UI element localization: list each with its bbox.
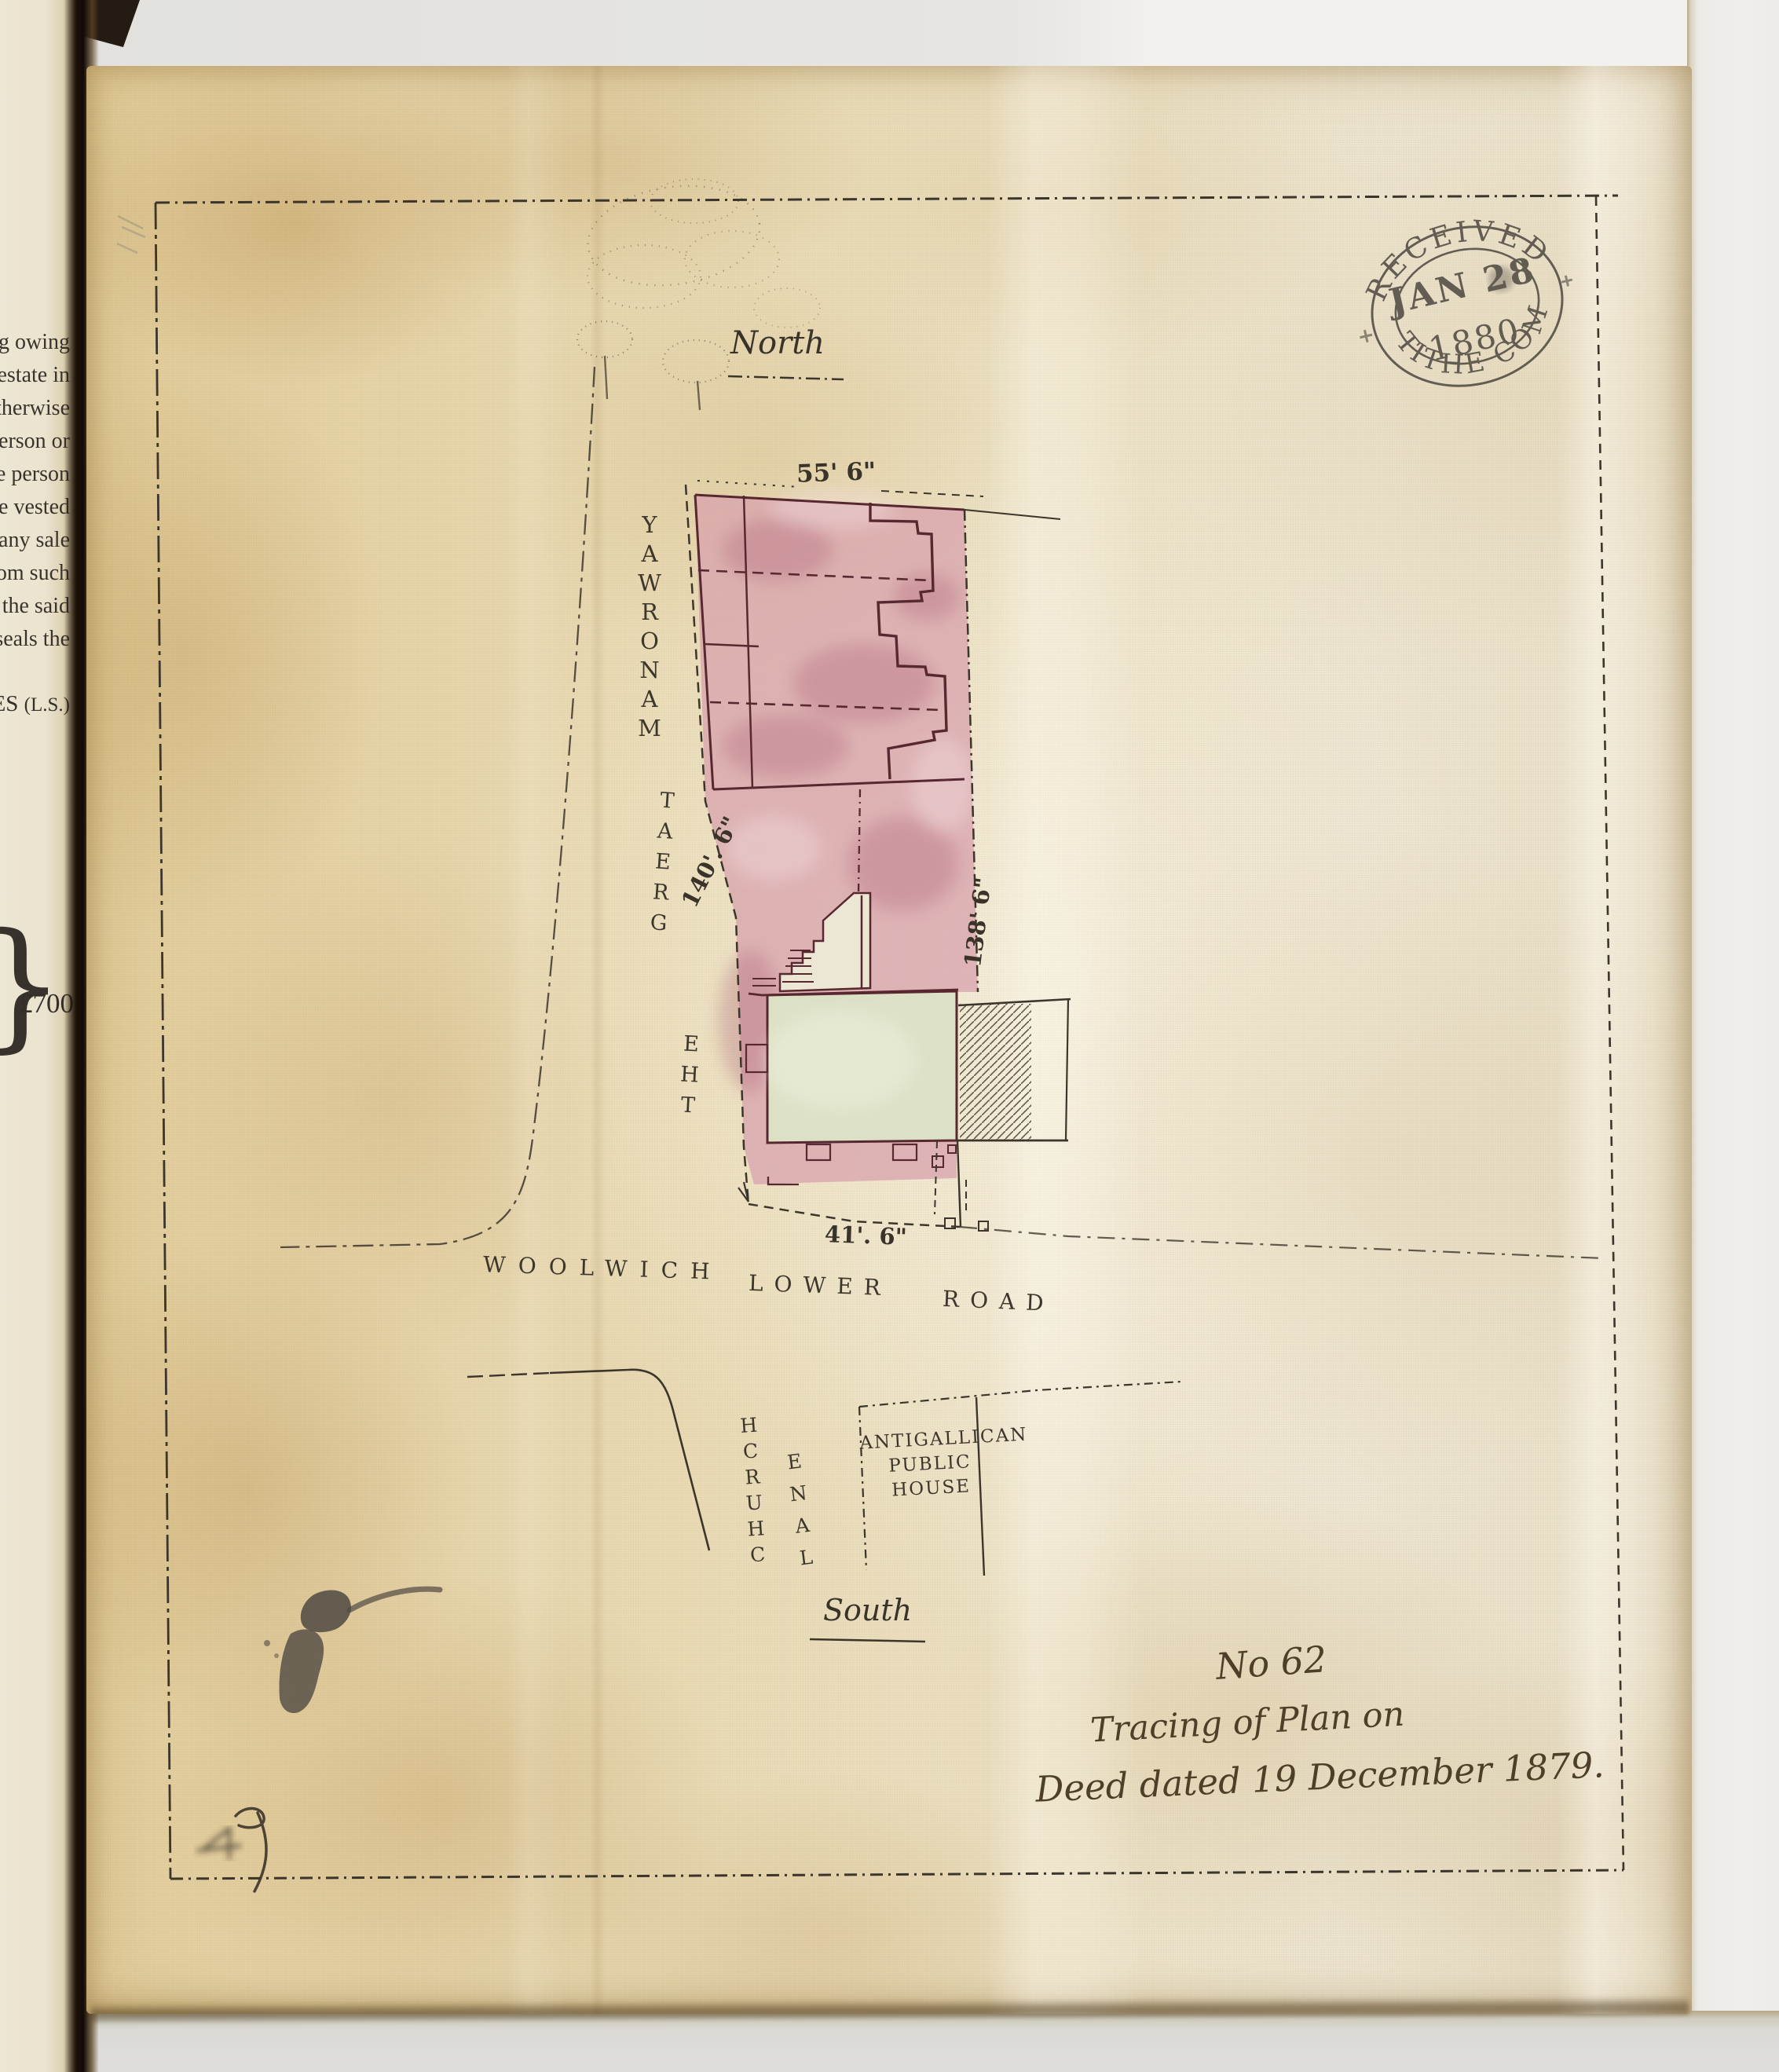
green-building [766,991,957,1143]
pencil-scuffs [117,216,145,253]
endorsement-number: No 62 [1214,1638,1328,1688]
road-label-the: E H T [670,1028,709,1122]
tree-sketch [577,175,820,410]
compass-north-label: North [730,325,825,361]
road-label-road: ROAD [942,1286,1055,1316]
stamp-ornament-left [1359,328,1374,343]
received-stamp: RECEIVED TITHE COM JAN 28 1880 [1338,194,1590,408]
measure-north-frontage: 55' 6" [796,457,876,489]
north-underline [728,376,844,379]
stamp-ornament-right [1561,274,1574,287]
road-label-manorway: Y A W R O N A M [631,511,668,743]
pub-plot-top-line [859,1382,1182,1407]
south-underline [810,1639,925,1642]
compass-south-label: South [823,1593,912,1627]
road-north-line-east [960,1227,1604,1258]
manorway-west-line [280,367,595,1247]
hatched-yard [957,999,1071,1140]
road-label-lower: LOWER [748,1270,891,1301]
church-lane-west-line [550,1370,709,1550]
measure-south-frontage: 41'. 6" [824,1221,907,1250]
road-south-line [467,1373,550,1377]
scanned-deed-plan-page: g owing estate in therwise erson or e pe… [0,0,1779,2072]
ink-blot [264,1589,440,1713]
pub-label-block: ANTIGALLICAN PUBLIC HOUSE [859,1424,1001,1504]
